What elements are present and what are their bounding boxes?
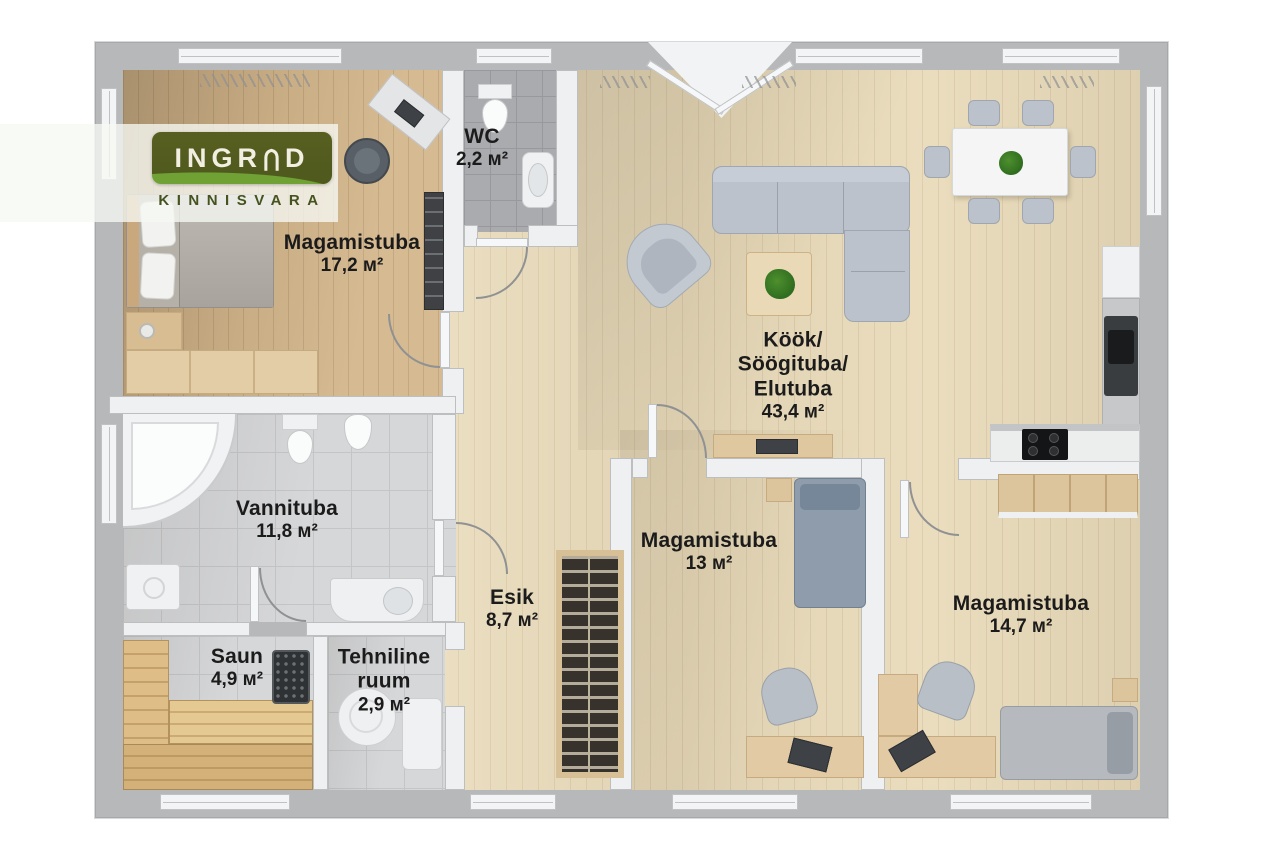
door-leaf bbox=[476, 238, 528, 247]
wardrobe bbox=[998, 474, 1138, 518]
window bbox=[672, 794, 798, 810]
radiator-hatch bbox=[1040, 76, 1094, 88]
wall bbox=[528, 225, 578, 247]
room-area: 43,4 м² bbox=[738, 402, 849, 424]
toilet bbox=[282, 414, 318, 430]
door-leaf bbox=[900, 480, 909, 538]
pillow bbox=[800, 484, 860, 510]
tv-wardrobe bbox=[424, 192, 444, 310]
dresser bbox=[126, 350, 318, 394]
sofa-chaise bbox=[844, 230, 910, 322]
burner bbox=[1028, 446, 1038, 456]
wall bbox=[432, 414, 456, 520]
washer-door bbox=[143, 577, 165, 599]
wall bbox=[306, 622, 456, 636]
logo-wordmark: INGR D bbox=[175, 143, 310, 174]
sofa-back bbox=[713, 167, 909, 182]
wall bbox=[442, 70, 464, 312]
dining-chair bbox=[1022, 198, 1054, 224]
window bbox=[950, 794, 1092, 810]
sofa bbox=[712, 166, 910, 234]
room-label-bedroom1: Magamistuba 17,2 м² bbox=[284, 231, 420, 277]
door-leaf bbox=[250, 566, 259, 622]
radiator-hatch bbox=[200, 74, 310, 87]
pillow bbox=[1107, 712, 1133, 774]
sofa-seam bbox=[851, 271, 905, 272]
room-name: ruum bbox=[338, 670, 430, 694]
room-area: 13 м² bbox=[641, 553, 777, 575]
kitchen-sink-unit bbox=[1104, 316, 1138, 396]
door-leaf bbox=[648, 404, 657, 458]
dining-table bbox=[952, 128, 1068, 196]
laptop bbox=[394, 99, 424, 128]
sideboard bbox=[713, 434, 833, 458]
sink-basin bbox=[383, 587, 413, 615]
nightstand bbox=[126, 312, 182, 350]
room-name: Magamistuba bbox=[284, 231, 420, 255]
vanity-sink bbox=[330, 578, 424, 622]
room-label-bathroom: Vannituba 11,8 м² bbox=[236, 497, 338, 543]
room-name: Magamistuba bbox=[953, 592, 1089, 616]
wall bbox=[123, 622, 250, 636]
logo-text-part2: D bbox=[285, 143, 310, 174]
door-leaf bbox=[434, 520, 444, 576]
fridge bbox=[1102, 246, 1140, 298]
ingrad-logo: INGR D bbox=[152, 132, 332, 184]
window bbox=[1146, 86, 1162, 216]
room-name: Esik bbox=[486, 586, 538, 610]
room-name: WC bbox=[456, 125, 508, 149]
burner bbox=[1028, 433, 1038, 443]
dining-chair bbox=[968, 100, 1000, 126]
cooktop bbox=[1022, 429, 1068, 460]
window bbox=[178, 48, 342, 64]
wall bbox=[313, 636, 328, 790]
sauna-heater bbox=[272, 650, 310, 704]
pillow bbox=[140, 252, 176, 300]
room-area: 8,7 м² bbox=[486, 610, 538, 632]
toilet bbox=[478, 84, 512, 99]
room-label-wc: WC 2,2 м² bbox=[456, 125, 508, 171]
room-area: 2,9 м² bbox=[338, 694, 430, 716]
room-label-tech: Tehniline ruum 2,9 м² bbox=[338, 646, 430, 717]
chair-seat bbox=[354, 148, 380, 174]
dining-chair bbox=[1022, 100, 1054, 126]
plant bbox=[999, 151, 1023, 175]
plant bbox=[765, 269, 795, 299]
room-name: Magamistuba bbox=[641, 529, 777, 553]
room-label-bedroom2: Magamistuba 13 м² bbox=[641, 529, 777, 575]
room-name: Köök/ bbox=[738, 328, 849, 352]
office-chair bbox=[344, 138, 390, 184]
wc-sink bbox=[522, 152, 554, 208]
sauna-bench-lower bbox=[123, 744, 313, 790]
wall bbox=[109, 396, 456, 414]
room-name: Elutuba bbox=[738, 377, 849, 401]
room-name: Tehniline bbox=[338, 646, 430, 670]
kitchen-sink-basin bbox=[1108, 330, 1134, 364]
burner bbox=[1049, 433, 1059, 443]
logo-subtext: KINNISVARA bbox=[150, 192, 334, 209]
window bbox=[476, 48, 552, 64]
logo-text-part1: INGR bbox=[175, 143, 263, 174]
burner bbox=[1049, 446, 1059, 456]
wall bbox=[556, 70, 578, 232]
window bbox=[160, 794, 290, 810]
washing-machine bbox=[126, 564, 180, 610]
room-name: Söögituba/ bbox=[738, 353, 849, 377]
dining-chair bbox=[1070, 146, 1096, 178]
dining-chair bbox=[924, 146, 950, 178]
wall bbox=[445, 622, 465, 650]
room-label-sauna: Saun 4,9 м² bbox=[211, 645, 263, 691]
single-bed bbox=[1000, 706, 1138, 780]
nightstand bbox=[766, 478, 792, 502]
room-area: 11,8 м² bbox=[236, 521, 338, 543]
room-name: Saun bbox=[211, 645, 263, 669]
dining-chair bbox=[968, 198, 1000, 224]
armchair-cushion bbox=[632, 230, 700, 297]
floor-plan-image: Magamistuba 17,2 м² WC 2,2 м² Köök/ Söög… bbox=[0, 0, 1280, 853]
open-wardrobe bbox=[556, 550, 624, 778]
room-area: 2,2 м² bbox=[456, 149, 508, 171]
room-area: 14,7 м² bbox=[953, 616, 1089, 638]
coffee-table bbox=[746, 252, 812, 316]
door-leaf bbox=[440, 312, 450, 368]
room-area: 17,2 м² bbox=[284, 255, 420, 277]
wall bbox=[445, 706, 465, 790]
window bbox=[101, 424, 117, 524]
wall bbox=[632, 458, 648, 478]
room-label-living: Köök/ Söögituba/ Elutuba 43,4 м² bbox=[738, 328, 849, 423]
single-bed bbox=[794, 478, 866, 608]
desk-return bbox=[878, 674, 918, 736]
nightstand bbox=[1112, 678, 1138, 702]
window bbox=[1002, 48, 1120, 64]
sauna-bench-upper bbox=[169, 700, 313, 744]
radiator-hatch bbox=[600, 76, 650, 88]
room-area: 4,9 м² bbox=[211, 669, 263, 691]
table-lamp bbox=[139, 323, 155, 339]
room-label-bedroom3: Magamistuba 14,7 м² bbox=[953, 592, 1089, 638]
wall bbox=[432, 576, 456, 622]
radiator-hatch bbox=[742, 76, 796, 88]
house-arch-icon bbox=[263, 148, 280, 172]
window bbox=[470, 794, 556, 810]
room-label-hall: Esik 8,7 м² bbox=[486, 586, 538, 632]
sink-basin bbox=[528, 163, 548, 197]
wall bbox=[706, 458, 863, 478]
window bbox=[795, 48, 923, 64]
sofa-seam bbox=[843, 182, 844, 233]
sofa-seam bbox=[777, 182, 778, 233]
tv bbox=[756, 439, 798, 454]
room-name: Vannituba bbox=[236, 497, 338, 521]
